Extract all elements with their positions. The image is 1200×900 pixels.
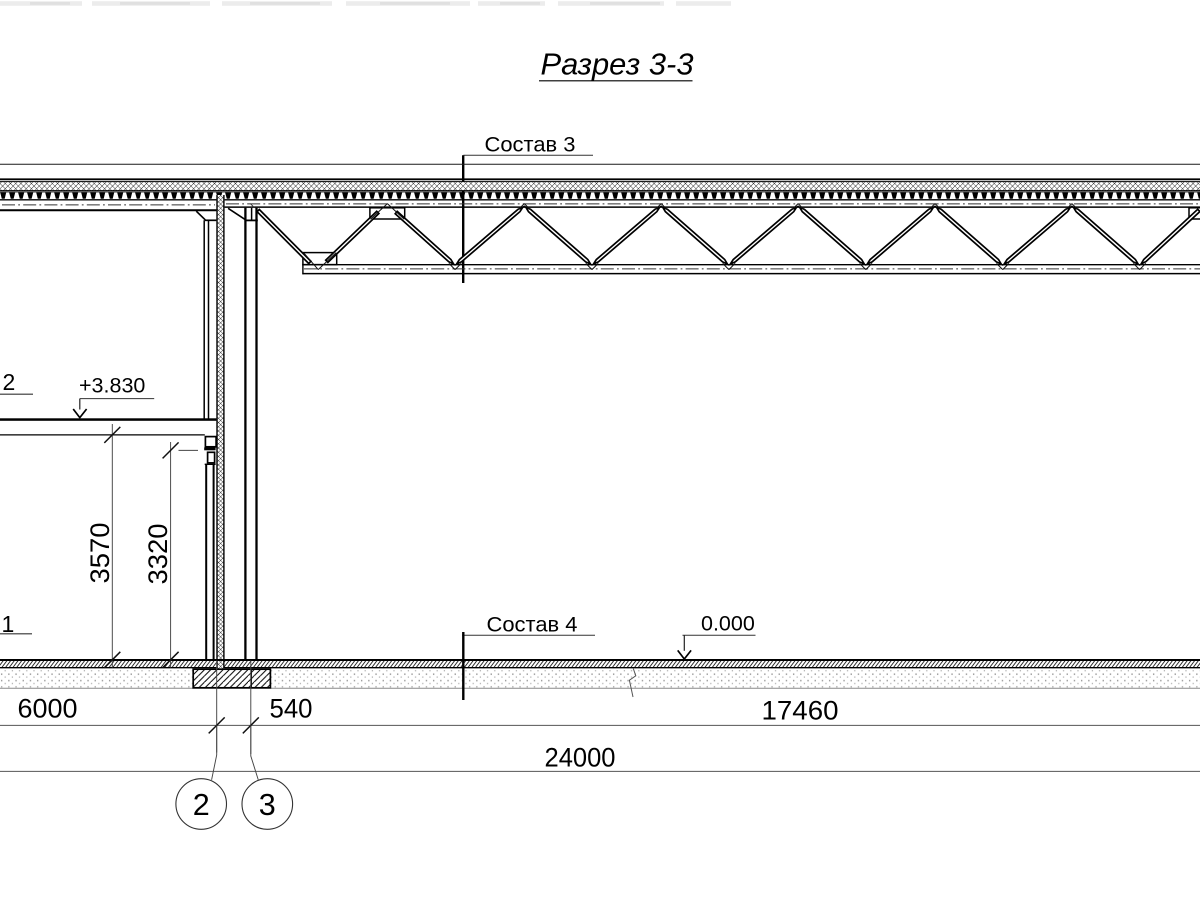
- svg-text:Состав 3: Состав 3: [485, 133, 576, 157]
- svg-text:24000: 24000: [545, 743, 616, 773]
- svg-text:2: 2: [193, 787, 210, 822]
- svg-text:3320: 3320: [143, 524, 173, 585]
- svg-text:Состав 4: Состав 4: [487, 613, 578, 637]
- svg-text:Разрез 3-3: Разрез 3-3: [541, 48, 694, 82]
- svg-text:0.000: 0.000: [701, 612, 755, 636]
- svg-text:6000: 6000: [18, 694, 78, 724]
- svg-text:3: 3: [259, 787, 276, 822]
- svg-text:3570: 3570: [85, 523, 115, 584]
- svg-text:17460: 17460: [762, 696, 839, 726]
- svg-text:2: 2: [3, 369, 16, 395]
- svg-text:1: 1: [2, 611, 15, 637]
- svg-text:+3.830: +3.830: [79, 373, 145, 397]
- svg-text:540: 540: [270, 694, 313, 724]
